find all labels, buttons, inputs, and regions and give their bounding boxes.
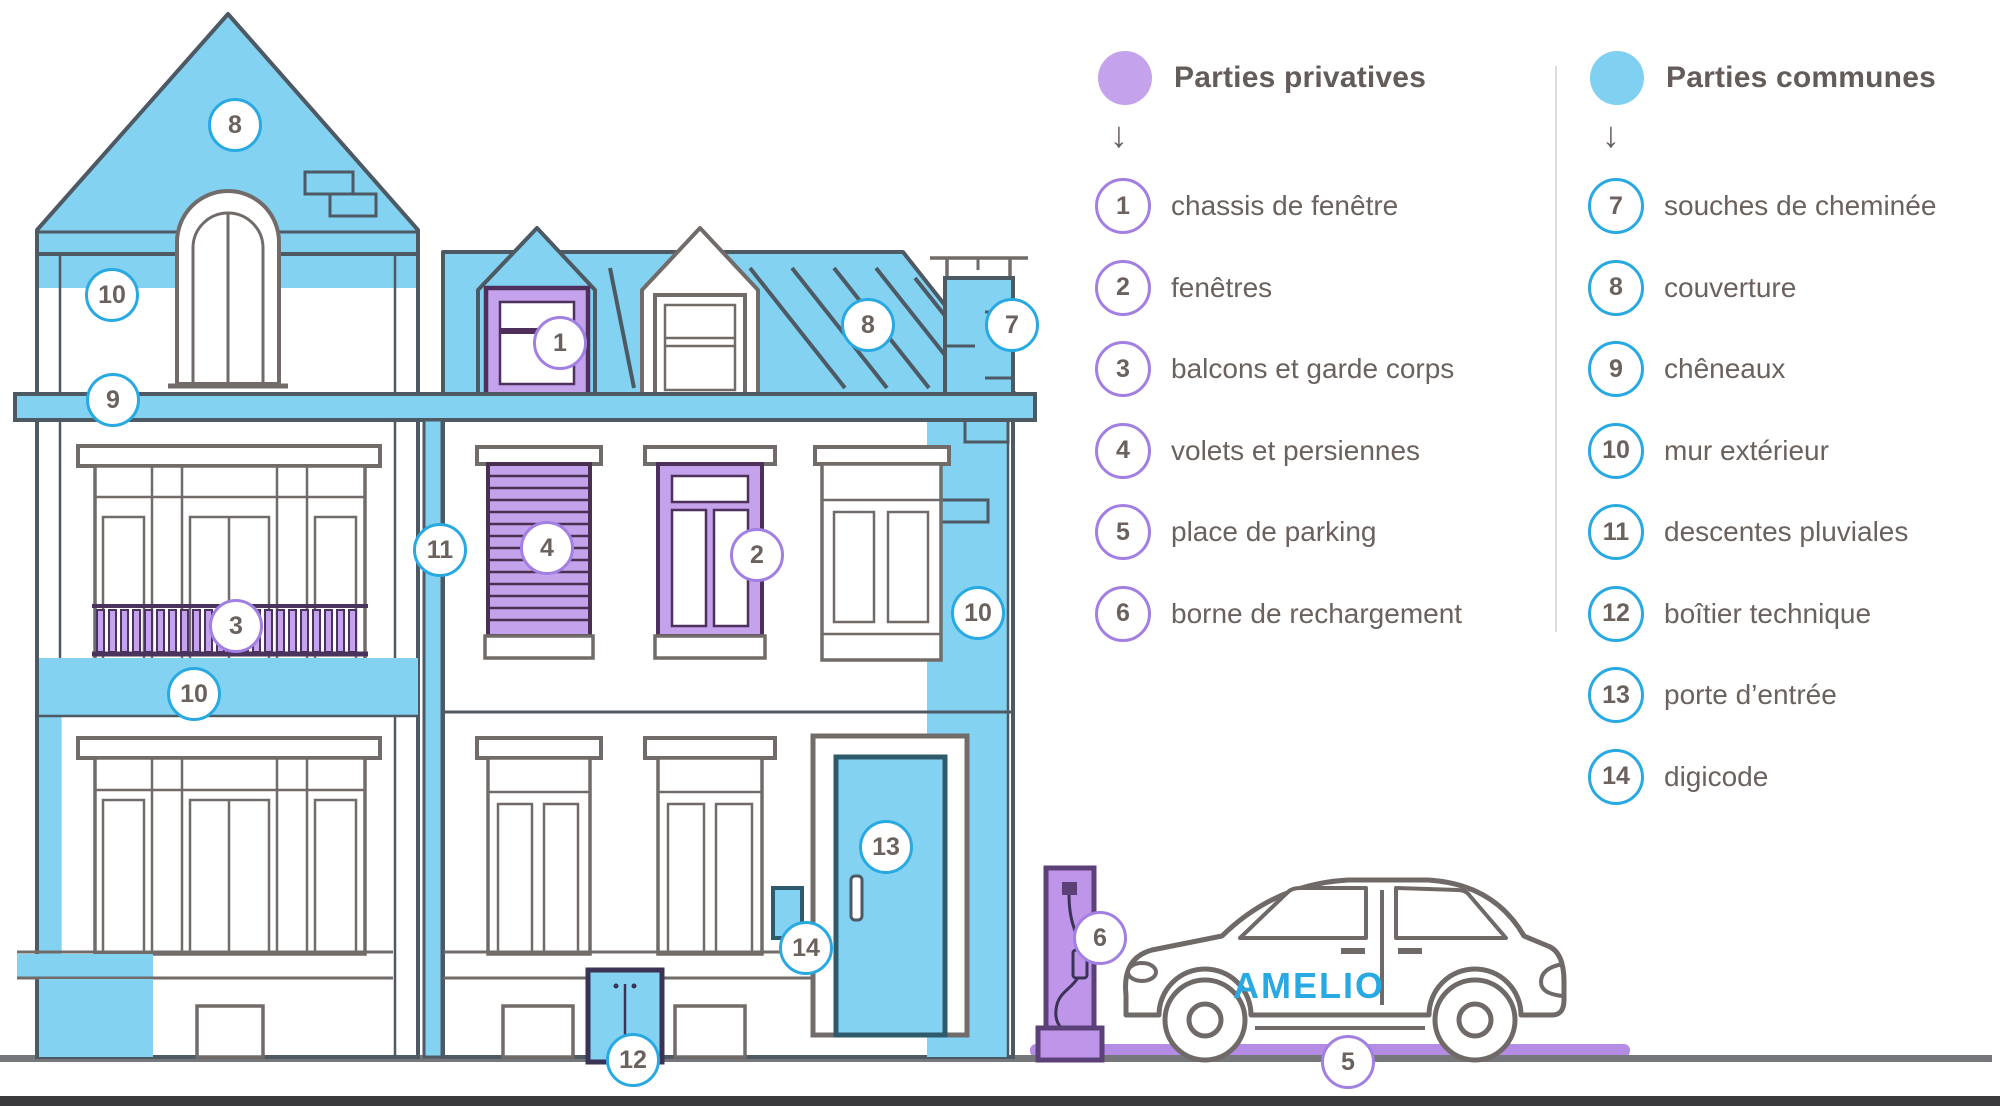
legend-item-number: 10 (1588, 423, 1644, 479)
marker-badge: 9 (86, 373, 140, 427)
left-tower (17, 14, 418, 1057)
down-arrow-icon: ↓ (1602, 114, 1620, 156)
legend-item-number: 8 (1588, 260, 1644, 316)
window-gray (815, 447, 949, 660)
legend-item-label: descentes pluviales (1664, 516, 1908, 548)
legend-item-number: 12 (1588, 586, 1644, 642)
marker-badge: 4 (520, 521, 574, 575)
legend-item-label: borne de rechargement (1171, 598, 1462, 630)
legend-item-number: 3 (1095, 341, 1151, 397)
legend-item: 4 volets et persiennes (1095, 423, 1462, 479)
plinth-blue (39, 979, 153, 1057)
wall-blue-band (39, 658, 418, 716)
vent (675, 1006, 745, 1057)
legend-private-header: Parties privatives (1098, 51, 1426, 105)
footer-band (0, 1096, 2000, 1106)
tower-ground-windows (78, 738, 380, 954)
legend-item-label: balcons et garde corps (1171, 353, 1454, 385)
marker-number: 10 (180, 680, 208, 709)
marker-number: 13 (872, 833, 900, 862)
legend-item-number: 2 (1095, 260, 1151, 316)
private-color-dot (1098, 51, 1152, 105)
door-handle (851, 876, 862, 920)
marker-number: 10 (98, 281, 126, 310)
legend-item-label: chêneaux (1664, 353, 1785, 385)
marker-number: 6 (1093, 924, 1107, 953)
marker-number: 14 (792, 934, 820, 963)
marker-badge: 14 (779, 921, 833, 975)
common-color-dot (1590, 51, 1644, 105)
marker-number: 2 (750, 541, 764, 570)
legend-item: 7 souches de cheminée (1588, 178, 1936, 234)
cornice-gutter (15, 394, 1035, 420)
legend-item: 6 borne de rechargement (1095, 586, 1462, 642)
marker-number: 7 (1005, 311, 1019, 340)
legend-private-title: Parties privatives (1174, 61, 1426, 95)
legend-item-label: couverture (1664, 272, 1796, 304)
basement-window (197, 1006, 263, 1057)
wall-brick (965, 420, 1008, 442)
marker-number: 9 (106, 386, 120, 415)
legend-item: 13 porte d’entrée (1588, 667, 1936, 723)
car-door-handle (1398, 948, 1422, 954)
molding-blue (17, 954, 153, 977)
legend-item: 2 fenêtres (1095, 260, 1462, 316)
marker-badge: 10 (167, 667, 221, 721)
legend-item-number: 14 (1588, 749, 1644, 805)
legend-item-label: chassis de fenêtre (1171, 190, 1398, 222)
marker-badge: 7 (985, 298, 1039, 352)
car-door-handle (1341, 948, 1365, 954)
legend-item: 12 boîtier technique (1588, 586, 1936, 642)
legend-private-list: 1 chassis de fenêtre 2 fenêtres 3 balcon… (1095, 178, 1462, 642)
entrance-door (813, 736, 967, 1035)
marker-badge: 5 (1321, 1035, 1375, 1089)
legend-common-list: 7 souches de cheminée 8 couverture 9 chê… (1588, 178, 1936, 805)
legend-item-number: 5 (1095, 504, 1151, 560)
legend-common-header: Parties communes (1590, 51, 1936, 105)
legend-item-number: 13 (1588, 667, 1644, 723)
car-headlight (1128, 963, 1156, 981)
legend-item-label: volets et persiennes (1171, 435, 1420, 467)
legend-item: 14 digicode (1588, 749, 1936, 805)
marker-badge: 1 (533, 316, 587, 370)
marker-number: 5 (1341, 1048, 1355, 1077)
legend-item-number: 1 (1095, 178, 1151, 234)
legend-item: 9 chêneaux (1588, 341, 1936, 397)
marker-number: 1 (553, 329, 567, 358)
legend-item: 1 chassis de fenêtre (1095, 178, 1462, 234)
legend-item-number: 4 (1095, 423, 1151, 479)
marker-badge: 12 (606, 1033, 660, 1087)
legend-item: 10 mur extérieur (1588, 423, 1936, 479)
marker-badge: 10 (85, 268, 139, 322)
marker-badge: 8 (841, 298, 895, 352)
marker-badge: 6 (1073, 911, 1127, 965)
legend-common-title: Parties communes (1666, 61, 1936, 95)
marker-number: 11 (427, 536, 453, 565)
legend-item-number: 6 (1095, 586, 1151, 642)
legend-item-label: fenêtres (1171, 272, 1272, 304)
legend-item-label: mur extérieur (1664, 435, 1829, 467)
legend-item-label: place de parking (1171, 516, 1376, 548)
arched-window (168, 191, 288, 386)
marker-badge: 13 (859, 820, 913, 874)
legend-item: 8 couverture (1588, 260, 1936, 316)
downspout (424, 420, 442, 1057)
down-arrow-icon: ↓ (1110, 114, 1128, 156)
marker-number: 3 (229, 612, 243, 641)
marker-badge: 3 (209, 599, 263, 653)
infographic-canvas: AMELIO 1 2 3 4 5 6 7 8 8 9 10 10 10 (0, 0, 2000, 1106)
legend-item-label: digicode (1664, 761, 1768, 793)
legend-item: 5 place de parking (1095, 504, 1462, 560)
wall-brick (940, 500, 988, 522)
legend-item-number: 7 (1588, 178, 1644, 234)
marker-badge: 10 (951, 586, 1005, 640)
marker-number: 4 (540, 534, 554, 563)
center-building (443, 228, 1028, 1062)
legend-item-label: boîtier technique (1664, 598, 1871, 630)
marker-number: 8 (861, 311, 875, 340)
legend-item: 11 descentes pluviales (1588, 504, 1936, 560)
marker-number: 8 (228, 111, 242, 140)
marker-badge: 11 (413, 523, 467, 577)
legend-item-number: 9 (1588, 341, 1644, 397)
legend-item-number: 11 (1588, 504, 1644, 560)
roof-brick (305, 172, 353, 194)
legend-item-label: souches de cheminée (1664, 190, 1936, 222)
car: AMELIO (1126, 880, 1564, 1060)
marker-badge: 2 (730, 528, 784, 582)
marker-badge: 8 (208, 98, 262, 152)
marker-number: 12 (619, 1046, 647, 1075)
car-brand: AMELIO (1233, 965, 1385, 1006)
legend-divider (1555, 66, 1557, 632)
marker-number: 10 (964, 599, 992, 628)
vent (503, 1006, 573, 1057)
roof-brick (330, 194, 376, 216)
legend-item-label: porte d’entrée (1664, 679, 1837, 711)
legend-item: 3 balcons et garde corps (1095, 341, 1462, 397)
